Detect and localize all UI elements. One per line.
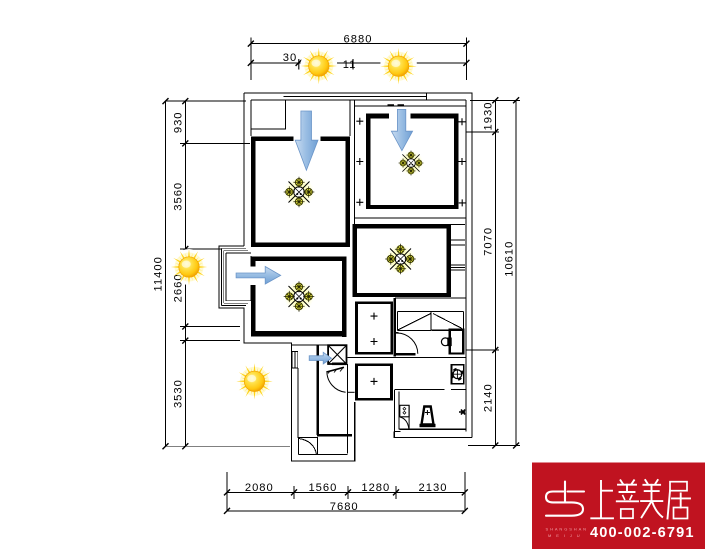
- svg-text:7070: 7070: [483, 227, 495, 256]
- svg-text:400-002-6791: 400-002-6791: [590, 525, 695, 541]
- svg-text:2140: 2140: [483, 383, 495, 412]
- svg-text:6880: 6880: [344, 33, 373, 45]
- svg-text:M E I J U: M E I J U: [548, 533, 582, 538]
- svg-text:930: 930: [173, 111, 185, 133]
- svg-text:11: 11: [343, 59, 357, 71]
- svg-text:30: 30: [283, 52, 297, 64]
- svg-text:11400: 11400: [153, 256, 165, 291]
- svg-text:SHANGSHAN: SHANGSHAN: [546, 527, 588, 532]
- svg-text:1280: 1280: [361, 482, 390, 494]
- svg-text:10610: 10610: [503, 241, 515, 277]
- svg-text:7680: 7680: [330, 501, 359, 513]
- svg-text:3530: 3530: [173, 379, 185, 408]
- svg-text:1560: 1560: [308, 482, 337, 494]
- svg-text:2130: 2130: [419, 482, 448, 494]
- svg-text:1930: 1930: [483, 102, 495, 131]
- svg-text:3560: 3560: [173, 182, 185, 211]
- svg-text:2080: 2080: [245, 482, 274, 494]
